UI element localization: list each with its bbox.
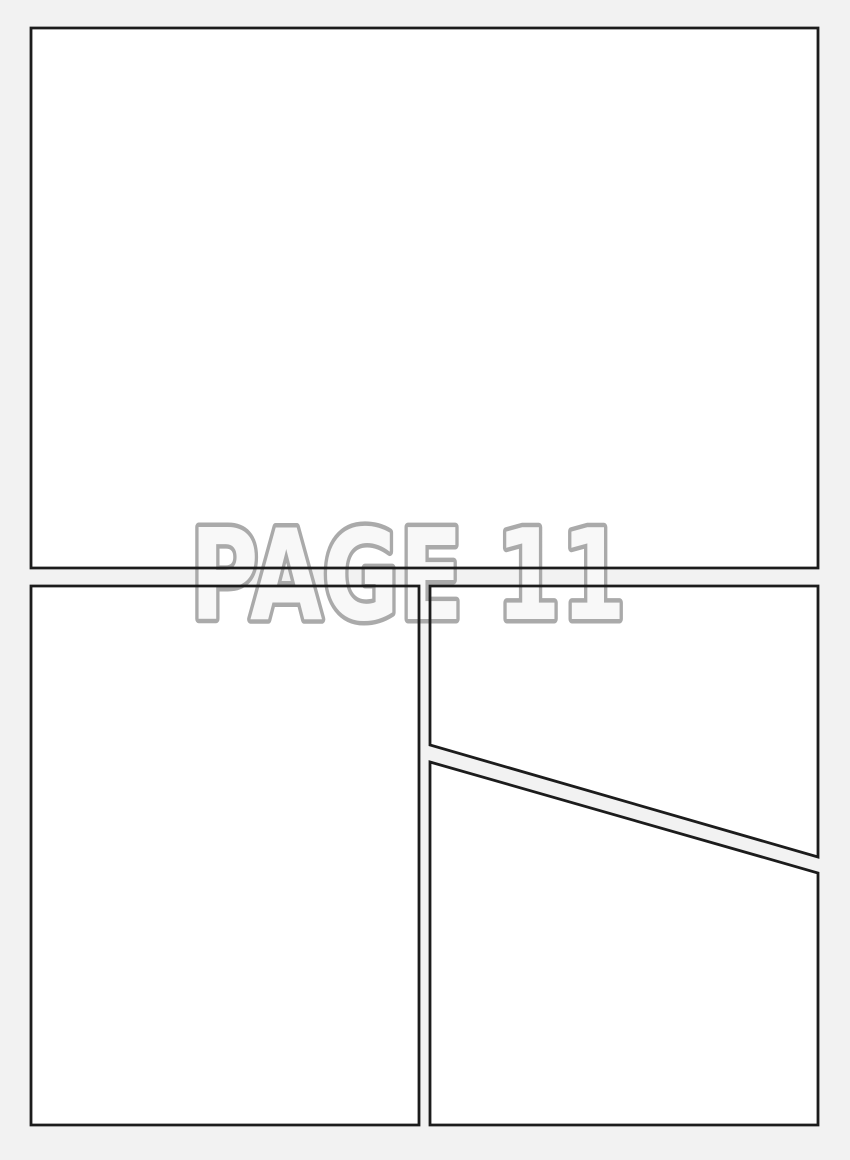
panel-1-fill [31,28,818,568]
panel-2-fill [31,586,419,1125]
page-title: PAGE 11 [190,502,626,649]
page-canvas: PAGE 11 [0,0,850,1160]
comic-page-template: PAGE 11 [0,0,850,1160]
